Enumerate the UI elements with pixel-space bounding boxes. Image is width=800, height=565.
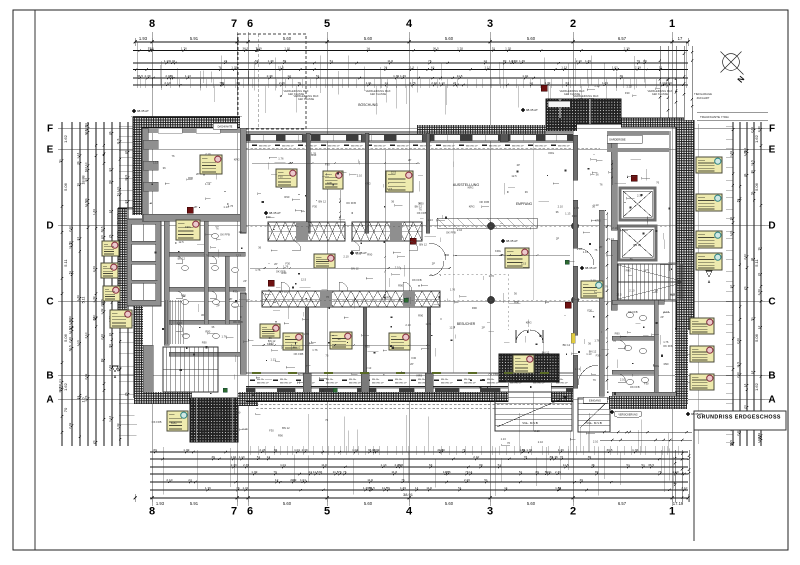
svg-text:1.01: 1.01 — [280, 463, 286, 467]
svg-text:36.5: 36.5 — [124, 175, 128, 181]
svg-text:36: 36 — [418, 202, 421, 206]
svg-text:1.13: 1.13 — [439, 81, 445, 85]
svg-text:76: 76 — [428, 59, 432, 63]
svg-text:2.26: 2.26 — [736, 338, 740, 344]
svg-text:2.39: 2.39 — [635, 65, 641, 69]
svg-text:1.13: 1.13 — [380, 463, 386, 467]
svg-text:EINGANG: EINGANG — [589, 399, 601, 403]
svg-text:5.60: 5.60 — [364, 501, 373, 506]
svg-text:1.01: 1.01 — [522, 74, 528, 78]
svg-text:F30: F30 — [181, 293, 186, 297]
svg-text:14: 14 — [743, 383, 747, 387]
svg-text:89: 89 — [108, 180, 112, 184]
svg-text:BN 12: BN 12 — [282, 426, 290, 430]
svg-text:36.5: 36.5 — [606, 448, 612, 452]
svg-text:76: 76 — [656, 180, 659, 184]
svg-text:2P: 2P — [229, 297, 232, 301]
svg-text:12.5: 12.5 — [298, 372, 304, 376]
svg-text:OK FFB: OK FFB — [446, 231, 456, 235]
svg-text:2.10: 2.10 — [431, 81, 437, 85]
svg-text:76: 76 — [594, 248, 597, 252]
svg-text:1.01: 1.01 — [116, 186, 120, 192]
svg-text:5.06: 5.06 — [754, 182, 759, 191]
svg-text:36: 36 — [750, 170, 754, 174]
svg-text:F30: F30 — [625, 91, 630, 95]
svg-text:E: E — [47, 145, 54, 156]
svg-text:51: 51 — [484, 478, 488, 482]
svg-text:5.91: 5.91 — [190, 36, 199, 41]
svg-text:76: 76 — [108, 333, 112, 337]
svg-text:24: 24 — [743, 405, 747, 409]
svg-text:2.39: 2.39 — [624, 46, 630, 50]
svg-text:76: 76 — [76, 183, 80, 187]
svg-text:1.76: 1.76 — [304, 332, 310, 336]
svg-text:1.76: 1.76 — [445, 470, 451, 474]
svg-text:OK FFB: OK FFB — [628, 310, 638, 314]
svg-text:BN 40x: BN 40x — [395, 379, 403, 381]
svg-text:1.76: 1.76 — [278, 157, 284, 161]
svg-text:76: 76 — [757, 247, 761, 251]
svg-text:OK FFB: OK FFB — [152, 420, 162, 424]
svg-text:F30: F30 — [266, 215, 271, 219]
svg-text:63: 63 — [100, 235, 104, 239]
svg-text:1.76: 1.76 — [552, 455, 558, 459]
svg-text:1.13: 1.13 — [484, 65, 490, 69]
svg-text:1.76: 1.76 — [594, 338, 600, 342]
svg-text:12.5: 12.5 — [301, 277, 307, 281]
svg-text:TRAUFKANTE 7.50m: TRAUFKANTE 7.50m — [700, 115, 730, 119]
svg-text:1.13: 1.13 — [565, 212, 571, 216]
svg-text:A: A — [768, 395, 775, 406]
svg-text:12.5: 12.5 — [616, 292, 622, 296]
svg-text:76: 76 — [600, 183, 603, 187]
svg-text:11.5: 11.5 — [391, 470, 397, 474]
svg-text:1.39: 1.39 — [400, 74, 406, 78]
svg-text:KRG: KRG — [234, 157, 240, 161]
svg-text:11.5: 11.5 — [750, 160, 754, 166]
svg-text:11.5: 11.5 — [563, 463, 569, 467]
svg-text:36: 36 — [620, 74, 624, 78]
svg-text:BN KRG 2P: BN KRG 2P — [558, 145, 570, 147]
svg-text:14: 14 — [385, 81, 389, 85]
svg-text:1.76: 1.76 — [181, 46, 187, 50]
svg-text:BN 12: BN 12 — [268, 339, 276, 343]
svg-text:2P: 2P — [432, 262, 435, 266]
svg-text:1.76: 1.76 — [663, 340, 669, 344]
svg-text:1.39: 1.39 — [183, 448, 189, 452]
svg-text:76: 76 — [605, 285, 608, 289]
svg-text:2P: 2P — [655, 289, 658, 293]
svg-text:2.10: 2.10 — [68, 226, 72, 232]
svg-text:14: 14 — [267, 455, 271, 459]
svg-text:12: 12 — [529, 81, 533, 85]
svg-text:5.06: 5.06 — [63, 333, 68, 342]
svg-text:1.01: 1.01 — [294, 448, 300, 452]
svg-text:12.5: 12.5 — [391, 171, 397, 175]
svg-text:2.10: 2.10 — [681, 486, 687, 490]
svg-text:R90: R90 — [472, 306, 477, 310]
svg-text:1.13: 1.13 — [76, 340, 80, 346]
svg-text:BN KRG 2P: BN KRG 2P — [533, 383, 545, 385]
svg-text:C: C — [46, 297, 53, 308]
svg-text:BN 40x: BN 40x — [280, 379, 288, 381]
svg-text:BN KRG 2P: BN KRG 2P — [374, 145, 386, 147]
svg-text:11.5: 11.5 — [426, 486, 432, 490]
svg-text:OK FFB: OK FFB — [663, 344, 673, 348]
svg-text:36: 36 — [591, 463, 595, 467]
svg-text:1.13: 1.13 — [177, 321, 183, 325]
svg-text:2P: 2P — [408, 158, 411, 162]
svg-text:BN 40x: BN 40x — [257, 379, 265, 381]
svg-text:11.5: 11.5 — [367, 478, 373, 482]
svg-text:2.10: 2.10 — [199, 427, 205, 431]
svg-text:36.5: 36.5 — [84, 129, 88, 135]
svg-text:76: 76 — [326, 295, 329, 299]
svg-text:1: 1 — [669, 18, 675, 30]
svg-text:11.5: 11.5 — [457, 74, 463, 78]
svg-text:98.35 AT: 98.35 AT — [585, 266, 597, 270]
svg-text:76: 76 — [218, 65, 222, 69]
svg-text:76: 76 — [630, 257, 633, 261]
svg-text:2P: 2P — [556, 236, 559, 240]
svg-text:OK FFB: OK FFB — [276, 269, 286, 273]
svg-text:76: 76 — [343, 470, 347, 474]
svg-text:76: 76 — [92, 317, 96, 321]
svg-text:1.13: 1.13 — [185, 74, 191, 78]
svg-text:2.39: 2.39 — [750, 127, 754, 133]
svg-text:36.5: 36.5 — [433, 46, 439, 50]
svg-text:1.76: 1.76 — [489, 274, 495, 278]
svg-text:1.01: 1.01 — [284, 46, 290, 50]
svg-text:36: 36 — [580, 478, 584, 482]
svg-text:89: 89 — [643, 59, 647, 63]
svg-text:76: 76 — [169, 74, 173, 78]
svg-text:2.10: 2.10 — [743, 253, 747, 259]
svg-text:36: 36 — [525, 190, 528, 194]
svg-text:36: 36 — [514, 292, 517, 296]
svg-text:76: 76 — [613, 339, 616, 343]
svg-text:89: 89 — [535, 470, 539, 474]
svg-text:5.60: 5.60 — [283, 501, 292, 506]
svg-text:BN 12: BN 12 — [419, 243, 427, 247]
svg-text:2P: 2P — [243, 279, 246, 283]
svg-text:2.10: 2.10 — [457, 228, 463, 232]
svg-text:5.11: 5.11 — [82, 297, 86, 304]
svg-text:F30: F30 — [325, 162, 330, 166]
svg-text:70: 70 — [63, 407, 68, 412]
svg-text:76: 76 — [216, 226, 219, 230]
svg-text:1.76: 1.76 — [505, 46, 511, 50]
svg-text:BN KRG 2P: BN KRG 2P — [351, 145, 363, 147]
svg-text:BN KRG 2P: BN KRG 2P — [512, 145, 524, 147]
svg-text:R90: R90 — [664, 362, 669, 366]
svg-text:51: 51 — [492, 46, 496, 50]
svg-text:2.10: 2.10 — [666, 81, 672, 85]
svg-text:KRG: KRG — [385, 296, 391, 300]
svg-text:12.5: 12.5 — [387, 187, 393, 191]
svg-text:5.60: 5.60 — [445, 36, 454, 41]
svg-text:76: 76 — [507, 441, 510, 445]
svg-text:1.76: 1.76 — [203, 254, 209, 258]
svg-text:2P: 2P — [196, 172, 199, 176]
svg-text:BN KRG 2P: BN KRG 2P — [466, 145, 478, 147]
svg-text:2P: 2P — [599, 245, 602, 249]
svg-text:76: 76 — [658, 470, 662, 474]
svg-text:1.13: 1.13 — [271, 358, 277, 362]
svg-text:98.35 AT: 98.35 AT — [269, 211, 281, 215]
svg-text:17: 17 — [678, 36, 683, 41]
svg-text:51: 51 — [641, 463, 645, 467]
svg-text:11.5: 11.5 — [116, 138, 120, 144]
svg-text:36.5: 36.5 — [68, 345, 72, 351]
svg-text:R90: R90 — [278, 434, 283, 438]
svg-text:1.39: 1.39 — [519, 59, 525, 63]
svg-text:1.39: 1.39 — [251, 470, 257, 474]
svg-text:1.76: 1.76 — [283, 265, 289, 269]
svg-text:1.13: 1.13 — [757, 437, 761, 443]
svg-text:2.39: 2.39 — [555, 470, 561, 474]
svg-text:2P: 2P — [274, 262, 277, 266]
svg-text:36: 36 — [743, 173, 747, 177]
svg-text:36: 36 — [368, 448, 372, 452]
svg-text:1.76: 1.76 — [205, 486, 211, 490]
svg-text:76: 76 — [386, 486, 390, 490]
svg-text:2.39: 2.39 — [145, 74, 151, 78]
svg-text:36.5: 36.5 — [242, 46, 248, 50]
svg-text:2.10: 2.10 — [576, 59, 582, 63]
svg-text:1.13: 1.13 — [575, 367, 581, 371]
svg-text:1.62: 1.62 — [63, 382, 68, 391]
svg-text:2: 2 — [570, 506, 576, 518]
svg-text:1.13: 1.13 — [153, 160, 159, 164]
svg-text:BN 40x: BN 40x — [533, 379, 541, 381]
svg-text:5: 5 — [324, 18, 330, 30]
svg-text:2P: 2P — [194, 205, 197, 209]
svg-text:12.5: 12.5 — [178, 240, 184, 244]
svg-text:F30: F30 — [587, 309, 592, 313]
svg-text:BN 12: BN 12 — [542, 350, 550, 354]
svg-text:2.39: 2.39 — [243, 463, 249, 467]
svg-text:5: 5 — [324, 506, 330, 518]
svg-text:R90: R90 — [572, 214, 577, 218]
svg-text:76: 76 — [406, 296, 409, 300]
svg-text:BN KRG 2P: BN KRG 2P — [349, 383, 361, 385]
svg-text:BN 12: BN 12 — [633, 243, 641, 247]
svg-text:36: 36 — [588, 342, 591, 346]
svg-text:76: 76 — [325, 354, 328, 358]
svg-text:1.01: 1.01 — [300, 478, 306, 482]
svg-text:2.10: 2.10 — [405, 323, 411, 327]
svg-text:51: 51 — [255, 59, 259, 63]
svg-text:BN KRG 2P: BN KRG 2P — [535, 145, 547, 147]
svg-text:6: 6 — [247, 506, 253, 518]
svg-text:2.10: 2.10 — [242, 427, 248, 431]
svg-text:12.5: 12.5 — [670, 292, 676, 296]
svg-text:89: 89 — [221, 81, 225, 85]
svg-text:1.13: 1.13 — [428, 218, 434, 222]
svg-text:OK FFB: OK FFB — [489, 372, 499, 376]
svg-text:AUSSTELLUNG: AUSSTELLUNG — [453, 183, 480, 187]
svg-text:98.35 AT: 98.35 AT — [691, 412, 703, 416]
svg-text:BN 12: BN 12 — [202, 431, 210, 435]
svg-text:36: 36 — [655, 321, 658, 325]
svg-text:BN 40x: BN 40x — [441, 379, 449, 381]
svg-text:36: 36 — [258, 246, 261, 250]
svg-text:36: 36 — [281, 345, 284, 349]
svg-text:89: 89 — [108, 344, 112, 348]
svg-text:24: 24 — [188, 478, 192, 482]
svg-text:D: D — [768, 221, 775, 232]
svg-text:1.01: 1.01 — [169, 59, 175, 63]
svg-text:R90: R90 — [398, 283, 403, 287]
svg-text:14: 14 — [366, 46, 370, 50]
svg-text:BN KRG 2P: BN KRG 2P — [326, 383, 338, 385]
svg-text:2.10: 2.10 — [757, 126, 761, 132]
svg-text:BESUCHER: BESUCHER — [457, 322, 476, 326]
svg-text:2P: 2P — [410, 362, 413, 366]
svg-text:11.5: 11.5 — [736, 362, 740, 368]
svg-text:51: 51 — [84, 168, 88, 172]
svg-text:51: 51 — [498, 463, 502, 467]
svg-text:18.88: 18.88 — [82, 176, 86, 185]
svg-text:51: 51 — [330, 59, 334, 63]
svg-text:6.57: 6.57 — [618, 501, 627, 506]
svg-text:36: 36 — [592, 204, 595, 208]
svg-text:2.10: 2.10 — [620, 378, 626, 382]
svg-text:2.39: 2.39 — [511, 59, 517, 63]
svg-text:51: 51 — [519, 470, 523, 474]
svg-text:1.76: 1.76 — [231, 65, 237, 69]
svg-text:36: 36 — [338, 337, 341, 341]
svg-text:1.76: 1.76 — [743, 150, 747, 156]
svg-text:36: 36 — [76, 161, 80, 165]
svg-text:2: 2 — [570, 18, 576, 30]
svg-text:89: 89 — [283, 59, 287, 63]
svg-text:BN KRG 2P: BN KRG 2P — [395, 383, 407, 385]
svg-text:89: 89 — [153, 448, 157, 452]
svg-text:1.76: 1.76 — [228, 204, 234, 208]
svg-text:R90: R90 — [514, 300, 519, 304]
svg-text:2.39: 2.39 — [757, 289, 761, 295]
svg-text:R90: R90 — [626, 268, 631, 272]
svg-text:2.10: 2.10 — [612, 226, 618, 230]
svg-text:3: 3 — [487, 506, 493, 518]
svg-text:BN 12: BN 12 — [318, 199, 326, 203]
svg-text:1.39: 1.39 — [268, 59, 274, 63]
svg-text:BN KRG 2P: BN KRG 2P — [487, 383, 499, 385]
svg-text:1.13: 1.13 — [609, 237, 615, 241]
svg-text:E: E — [769, 145, 776, 156]
svg-text:VGL. M.V.B: VGL. M.V.B — [586, 421, 602, 425]
svg-text:1.01: 1.01 — [58, 379, 62, 385]
svg-text:R90: R90 — [202, 341, 207, 345]
svg-text:36: 36 — [211, 455, 215, 459]
svg-text:R90: R90 — [418, 314, 423, 318]
svg-text:2.10: 2.10 — [84, 332, 88, 338]
svg-text:2.26: 2.26 — [68, 337, 72, 343]
svg-text:63: 63 — [431, 65, 435, 69]
svg-text:1.39: 1.39 — [558, 448, 564, 452]
svg-text:OK FFB: OK FFB — [233, 320, 243, 324]
svg-text:BN KRG 2P: BN KRG 2P — [464, 383, 476, 385]
svg-text:BN KRG 2P: BN KRG 2P — [259, 145, 271, 147]
svg-text:11.5: 11.5 — [387, 59, 393, 63]
svg-text:2.39: 2.39 — [92, 266, 96, 272]
svg-text:BN KRG 2P: BN KRG 2P — [328, 145, 340, 147]
svg-text:63: 63 — [108, 168, 112, 172]
svg-text:89: 89 — [522, 448, 526, 452]
svg-text:F30: F30 — [596, 354, 601, 358]
svg-text:76: 76 — [124, 392, 128, 396]
svg-text:1.39: 1.39 — [602, 81, 608, 85]
svg-text:1.62: 1.62 — [754, 134, 759, 143]
svg-text:1.62: 1.62 — [754, 382, 759, 391]
svg-text:KRG: KRG — [495, 249, 501, 253]
svg-text:76: 76 — [108, 234, 112, 238]
svg-text:1.39: 1.39 — [585, 59, 591, 63]
svg-text:2P: 2P — [517, 163, 520, 167]
svg-text:2.39: 2.39 — [68, 423, 72, 429]
svg-text:11.5: 11.5 — [321, 463, 327, 467]
svg-text:1.76: 1.76 — [450, 288, 456, 292]
svg-text:VGL. M.V.B: VGL. M.V.B — [522, 421, 538, 425]
svg-text:BN 12: BN 12 — [563, 343, 571, 347]
svg-text:12: 12 — [484, 59, 488, 63]
svg-text:76: 76 — [462, 448, 466, 452]
svg-text:98.35 AT: 98.35 AT — [526, 108, 538, 112]
svg-text:1.0: 1.0 — [82, 398, 86, 403]
svg-text:51: 51 — [458, 486, 462, 490]
svg-text:36.5: 36.5 — [58, 386, 62, 392]
svg-text:5.06: 5.06 — [754, 333, 759, 342]
svg-text:3: 3 — [487, 18, 493, 30]
svg-text:8: 8 — [149, 506, 155, 518]
svg-text:BN 12: BN 12 — [351, 266, 359, 270]
svg-text:1.39: 1.39 — [400, 486, 406, 490]
svg-text:12: 12 — [275, 478, 279, 482]
svg-text:BN 40x: BN 40x — [487, 379, 495, 381]
svg-text:7: 7 — [231, 506, 237, 518]
svg-text:BN KRG 2P: BN KRG 2P — [257, 383, 269, 385]
svg-text:1.13: 1.13 — [561, 65, 567, 69]
svg-text:5.60: 5.60 — [364, 36, 373, 41]
svg-text:12: 12 — [287, 74, 291, 78]
svg-text:1.76: 1.76 — [574, 206, 580, 210]
svg-text:B: B — [768, 371, 775, 382]
svg-text:2.10: 2.10 — [590, 278, 596, 282]
svg-text:5.91: 5.91 — [190, 501, 199, 506]
svg-text:12: 12 — [729, 285, 733, 289]
svg-text:F30: F30 — [644, 382, 649, 386]
svg-text:6: 6 — [247, 18, 253, 30]
svg-text:2.10: 2.10 — [84, 162, 88, 168]
svg-text:1.13: 1.13 — [594, 84, 600, 88]
svg-text:1.39: 1.39 — [729, 151, 733, 157]
svg-text:12.5: 12.5 — [644, 268, 650, 272]
svg-text:2.10: 2.10 — [629, 288, 635, 292]
svg-text:6.57: 6.57 — [618, 36, 627, 41]
svg-text:5.60: 5.60 — [445, 501, 454, 506]
svg-text:12.5: 12.5 — [426, 322, 432, 326]
svg-text:1.39: 1.39 — [393, 74, 399, 78]
svg-text:C: C — [768, 297, 775, 308]
svg-text:2.10: 2.10 — [356, 252, 362, 256]
svg-text:51: 51 — [58, 159, 62, 163]
svg-text:BN 40x: BN 40x — [372, 379, 380, 381]
svg-text:98.35 AT: 98.35 AT — [137, 109, 149, 113]
svg-text:KRG: KRG — [548, 151, 554, 155]
svg-text:14: 14 — [415, 486, 419, 490]
